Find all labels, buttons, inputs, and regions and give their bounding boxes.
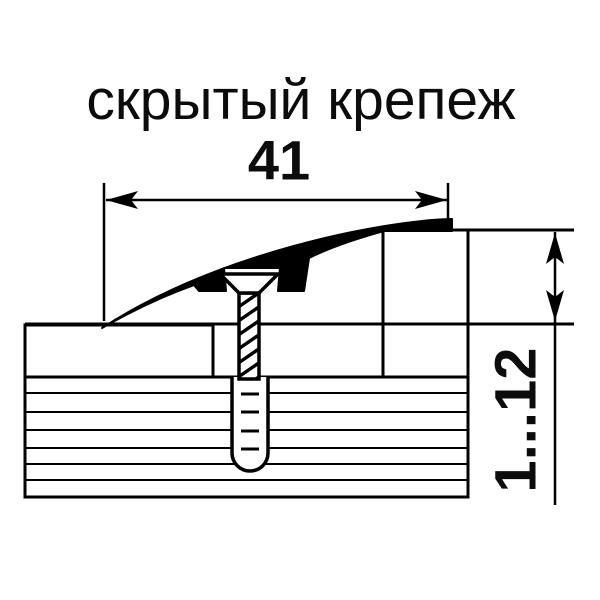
diagram-canvas: скрытый крепеж 41 1...12 <box>0 0 600 600</box>
height-dimension-label: 1...12 <box>484 347 549 492</box>
height-dimension <box>546 232 564 505</box>
diagram-title: скрытый крепеж <box>86 68 515 132</box>
dowel-anchor <box>232 377 268 471</box>
technical-drawing: скрытый крепеж 41 1...12 <box>0 0 600 600</box>
anchor-sleeve-outline <box>232 377 268 471</box>
screw-head <box>220 274 278 293</box>
floor-covering-right-block <box>383 230 468 377</box>
width-dimension-label: 41 <box>248 129 310 192</box>
floor-covering-left-block <box>25 325 213 377</box>
